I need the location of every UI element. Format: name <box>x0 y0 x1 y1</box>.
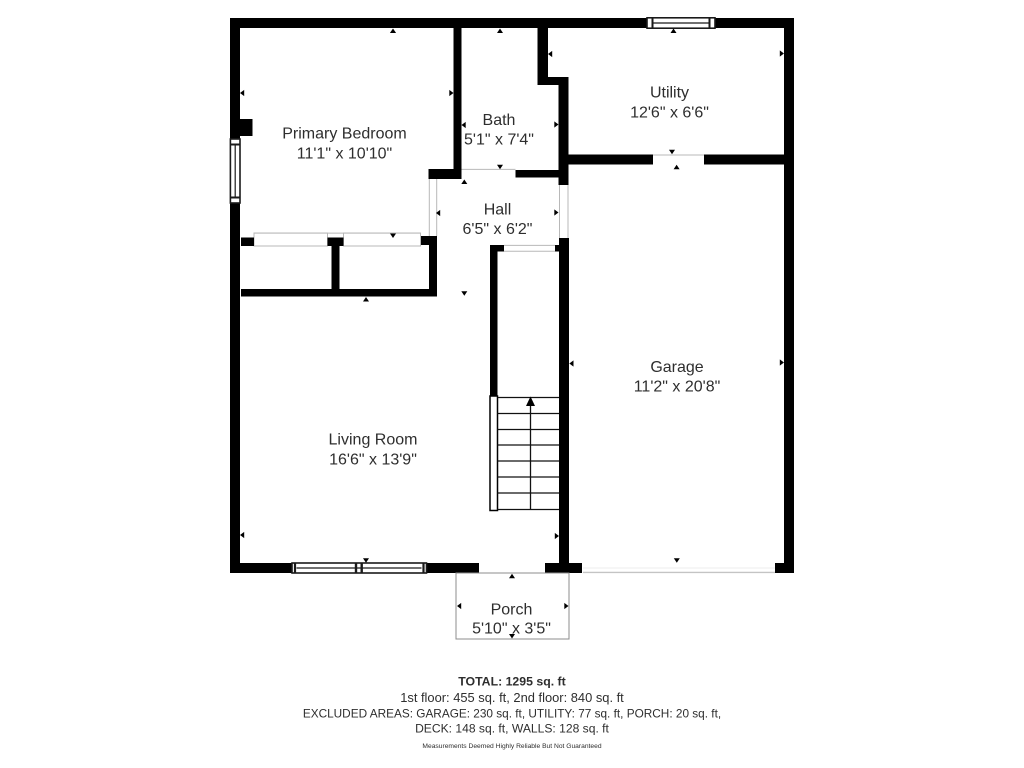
svg-text:EXCLUDED AREAS: GARAGE: 230 sq: EXCLUDED AREAS: GARAGE: 230 sq. ft, UTIL… <box>303 707 721 721</box>
svg-text:12'6" x 6'6": 12'6" x 6'6" <box>630 105 709 122</box>
svg-text:Porch: Porch <box>491 602 533 619</box>
svg-text:11'1" x 10'10": 11'1" x 10'10" <box>297 146 392 163</box>
svg-text:5'10" x 3'5": 5'10" x 3'5" <box>472 621 551 638</box>
svg-text:Living Room: Living Room <box>329 432 418 449</box>
svg-text:1st floor: 455 sq. ft, 2nd flo: 1st floor: 455 sq. ft, 2nd floor: 840 sq… <box>400 690 624 705</box>
svg-text:5'1" x 7'4": 5'1" x 7'4" <box>464 132 534 149</box>
svg-text:DECK: 148 sq. ft, WALLS: 128 s: DECK: 148 sq. ft, WALLS: 128 sq. ft <box>415 722 609 736</box>
svg-text:16'6" x 13'9": 16'6" x 13'9" <box>329 452 417 469</box>
svg-text:Hall: Hall <box>484 202 512 219</box>
svg-text:11'2" x 20'8": 11'2" x 20'8" <box>634 379 721 396</box>
svg-text:TOTAL: 1295 sq. ft: TOTAL: 1295 sq. ft <box>458 675 566 689</box>
svg-text:6'5" x 6'2": 6'5" x 6'2" <box>463 221 533 238</box>
svg-text:Bath: Bath <box>483 112 516 129</box>
svg-text:Utility: Utility <box>650 85 689 102</box>
svg-text:Measurements Deemed Highly Rel: Measurements Deemed Highly Reliable But … <box>422 743 601 750</box>
svg-text:Garage: Garage <box>650 359 703 376</box>
svg-text:Primary Bedroom: Primary Bedroom <box>282 126 406 143</box>
